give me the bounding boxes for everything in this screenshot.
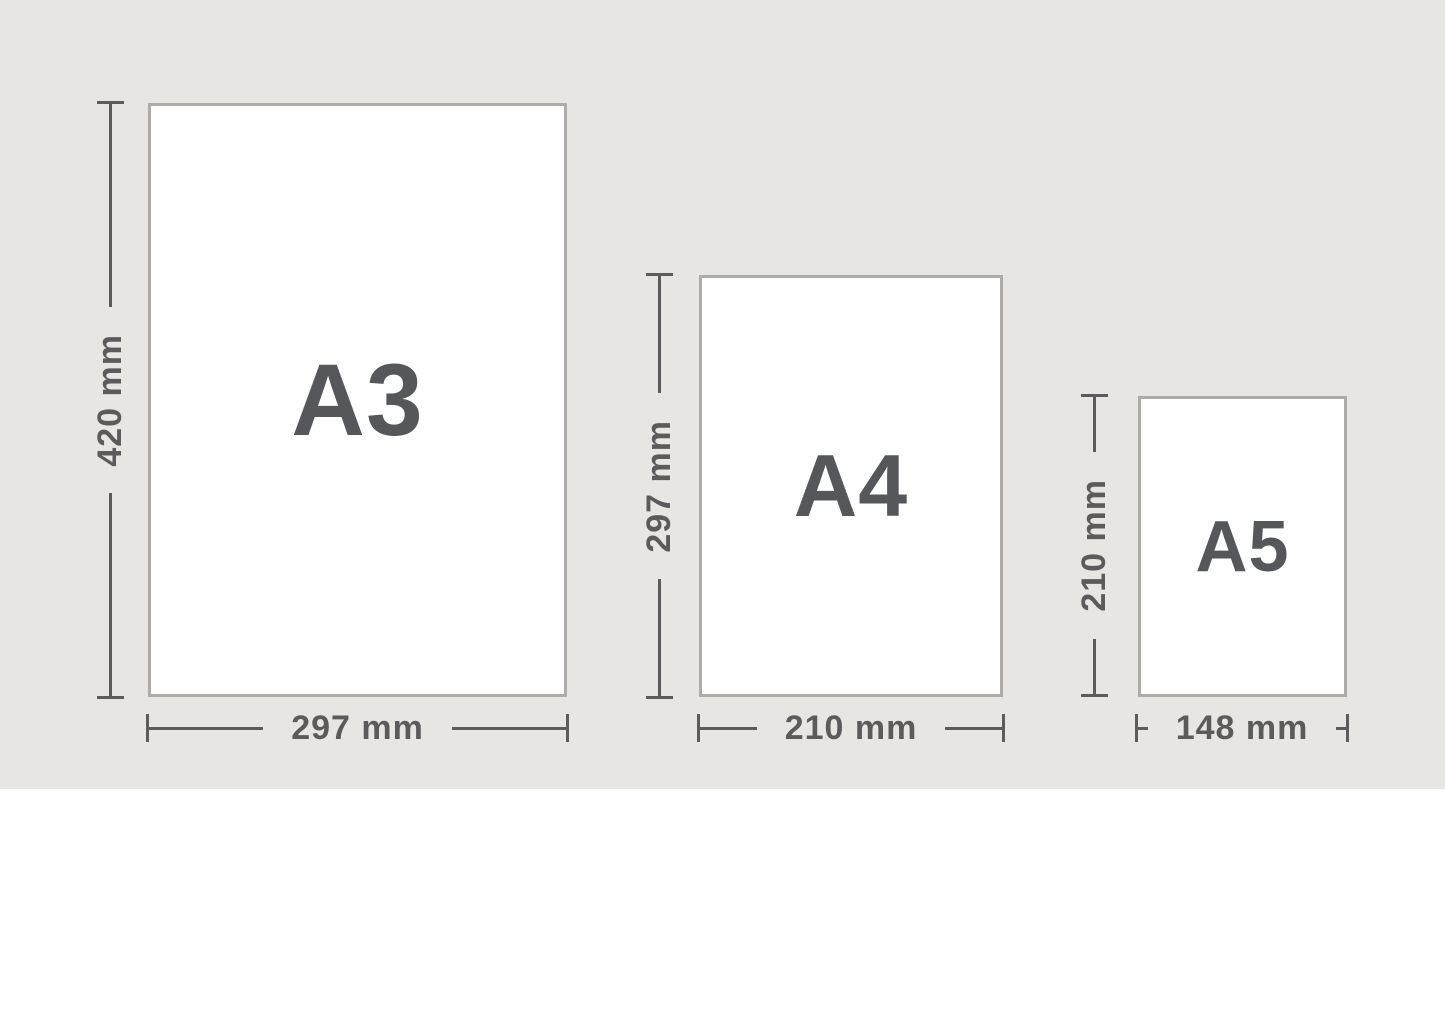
dimension-line	[945, 727, 1002, 730]
paper-a5: A5	[1138, 396, 1347, 697]
a5-height-dimension: 210 mm	[1080, 394, 1108, 697]
diagram-area: 420 mm A3 297 mm 297 mm A4 210	[0, 0, 1445, 789]
a4-width-dimension: 210 mm	[697, 708, 1005, 748]
paper-a3: A3	[148, 103, 567, 697]
dimension-tick	[1081, 694, 1108, 697]
a5-width-label: 148 mm	[1148, 711, 1337, 745]
dimension-line	[452, 727, 566, 730]
dimension-line	[109, 493, 112, 696]
dimension-tick	[566, 714, 569, 742]
a5-width-dimension: 148 mm	[1135, 708, 1349, 748]
a3-width-dimension: 297 mm	[146, 708, 569, 748]
a3-height-label: 420 mm	[93, 307, 127, 494]
a3-height-dimension: 420 mm	[96, 101, 124, 699]
dimension-tick	[1346, 714, 1349, 742]
a5-height-label: 210 mm	[1077, 452, 1111, 639]
dimension-line	[658, 579, 661, 696]
dimension-line	[1093, 639, 1096, 694]
paper-a4-label: A4	[794, 442, 909, 530]
footer-area: SIZE GUIDE PAUSE DESIGNS	[0, 789, 1445, 1021]
paper-a3-label: A3	[291, 349, 423, 451]
dimension-line	[1336, 727, 1346, 730]
dimension-line	[658, 276, 661, 393]
dimension-tick	[646, 696, 673, 699]
a4-width-label: 210 mm	[757, 711, 946, 745]
paper-a5-label: A5	[1195, 511, 1289, 583]
dimension-line	[109, 104, 112, 307]
dimension-tick	[97, 696, 124, 699]
size-guide-image: 420 mm A3 297 mm 297 mm A4 210	[0, 0, 1445, 1021]
dimension-line	[1093, 397, 1096, 452]
a3-width-label: 297 mm	[263, 711, 452, 745]
dimension-tick	[1002, 714, 1005, 742]
a4-height-dimension: 297 mm	[645, 273, 673, 699]
paper-a4: A4	[699, 275, 1003, 697]
dimension-line	[149, 727, 263, 730]
a4-height-label: 297 mm	[642, 393, 676, 580]
dimension-line	[1138, 727, 1148, 730]
dimension-line	[700, 727, 757, 730]
